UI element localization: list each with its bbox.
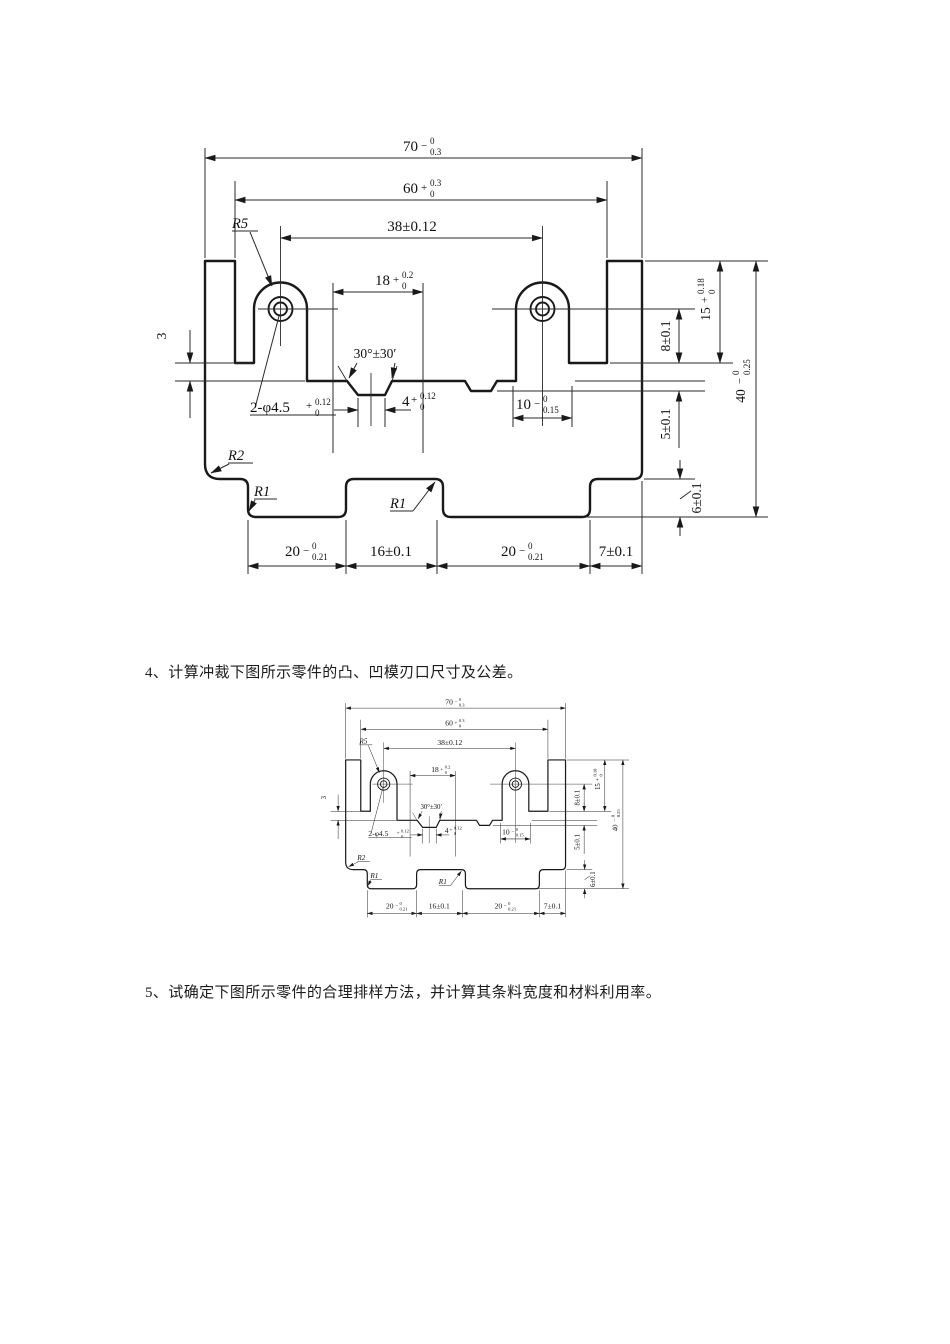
dim-sign: + [421, 182, 427, 194]
dim-sign: + [411, 394, 417, 406]
dim-tol-sub: 0 [707, 289, 717, 294]
leader-line [349, 363, 357, 378]
label-r2: R2 [349, 854, 370, 867]
dim-label: 40 [733, 389, 748, 403]
dim-sign: + [699, 297, 711, 303]
dim-angle-30: 30°±30′ [349, 346, 396, 378]
dim-label: 8±0.1 [575, 790, 582, 806]
leader-line [250, 232, 272, 286]
dim-tol-sub: 0 [401, 834, 404, 839]
dim-tol-sup: 0 [312, 541, 317, 551]
dim-tol-sup: 0.2 [445, 765, 451, 770]
dim-tol-sub: 0.3 [430, 147, 442, 157]
dim-label: 18 [375, 273, 390, 289]
radius-label: R5 [231, 216, 248, 232]
dim-sign: − [303, 545, 309, 557]
dim-tol-sub: 0.25 [616, 809, 621, 818]
dim-tol-sub: 0.15 [543, 405, 559, 415]
dim-tol-sub: 0 [598, 774, 603, 777]
label-r1-middle: R1 [438, 871, 462, 886]
dim-sign: − [395, 903, 398, 909]
dim-holes: 2-φ4.5 + 0.12 0 [368, 788, 411, 839]
label-r5: R5 [231, 216, 272, 286]
radius-label: R1 [438, 878, 447, 886]
flare-line [338, 366, 347, 381]
dim-width-70: 70 − 0 0.3 [205, 136, 642, 258]
dim-height-8: 8±0.1 [549, 784, 611, 811]
leader-line [450, 871, 461, 886]
dim-tol-sup: 0 [543, 394, 548, 404]
leader-line [371, 788, 383, 834]
dim-tol-sub: 0.21 [528, 552, 544, 562]
dim-label: 15 [595, 783, 602, 790]
dim-label: 15 [698, 307, 713, 321]
dim-tol-sub: 0 [454, 831, 457, 836]
leader-line [349, 862, 358, 867]
dim-height-6: 6±0.1 [644, 460, 704, 536]
dim-sign: − [519, 545, 525, 557]
leader-line [211, 464, 229, 473]
dim-label: 38±0.12 [437, 738, 462, 747]
leader-line [255, 316, 279, 408]
dim-label: 70 [445, 698, 453, 707]
dim-sign: − [511, 829, 514, 835]
dim-sign: + [306, 400, 312, 412]
dim-label: 60 [403, 181, 418, 197]
dim-sign: + [393, 274, 399, 286]
radius-label: R2 [227, 448, 244, 464]
dim-label: 10 [502, 827, 510, 836]
dim-label: 4 [402, 394, 410, 410]
dim-label: 10 [516, 397, 531, 413]
dim-label: 20 [386, 901, 394, 910]
dim-height-8: 8±0.1 [610, 309, 733, 363]
part-drawing-svg: 70 − 0 0.3 60 + 0.3 0 38±0.12 18 + 0.2 0… [150, 118, 790, 588]
dim-tol-sup: 0.12 [454, 825, 463, 830]
dim-sign: − [612, 819, 618, 822]
dim-bottom-row: 20 − 0 0.21 16±0.1 20 − 0 0.21 7±0.1 [367, 871, 565, 918]
dim-label: 8±0.1 [658, 320, 673, 351]
dim-sign: + [440, 767, 443, 773]
dim-tol-sup: 0.18 [593, 768, 598, 777]
leader-line [413, 482, 435, 511]
dim-tol-sub: 0 [402, 281, 407, 291]
leader-line [249, 500, 255, 511]
centerlines [372, 742, 592, 843]
dim-label: 16±0.1 [370, 544, 412, 560]
dim-tol-sup: 0.12 [315, 397, 331, 407]
dim-label: 5±0.1 [658, 408, 673, 439]
dim-tol-sub: 0 [430, 189, 435, 199]
label-r1-left: R1 [368, 872, 382, 886]
dim-label: 30°±30′ [354, 346, 397, 361]
dim-tol-sub: 0 [459, 724, 462, 729]
leader-line [368, 880, 371, 886]
question-5-text: 5、试确定下图所示零件的合理排样方法，并计算其条料宽度和材料利用率。 [145, 981, 661, 1002]
dim-width-38: 38±0.12 [384, 738, 516, 749]
label-r1-middle: R1 [389, 482, 435, 512]
dim-sign: − [504, 903, 507, 909]
dim-label: 16±0.1 [429, 901, 450, 910]
dim-tol-sup: 0.18 [696, 278, 706, 294]
dim-sign: − [734, 378, 746, 384]
dim-label: 20 [495, 901, 503, 910]
dim-label: 2-φ4.5 [368, 829, 388, 838]
figure-large-part-drawing: 70 − 0 0.3 60 + 0.3 0 38±0.12 18 + 0.2 0… [150, 118, 790, 588]
dim-tol-sup: 0 [508, 901, 511, 906]
dim-width-4: 4 + 0.12 0 [411, 825, 463, 843]
dim-tol-sup: 0 [516, 827, 519, 832]
dim-label: 6±0.1 [689, 482, 704, 513]
dim-label: 30°±30′ [420, 804, 442, 811]
dim-tol-sup: 0 [430, 136, 435, 146]
dim-tol-sup: 0 [610, 814, 615, 817]
dim-width-38: 38±0.12 [281, 219, 543, 238]
dim-tol-sub: 0 [445, 770, 448, 775]
dim-sign: + [454, 721, 457, 727]
radius-label: R5 [358, 737, 367, 745]
dim-tol-sub: 0.3 [459, 703, 465, 708]
radius-label: R1 [253, 484, 270, 500]
question-4-text: 4、计算冲裁下图所示零件的凸、凹模刃口尺寸及公差。 [145, 661, 523, 682]
dim-width-4: 4 + 0.12 0 [334, 391, 436, 427]
dim-sign: + [449, 827, 452, 833]
dim-sign: − [454, 700, 457, 706]
dim-height-6: 6±0.1 [567, 860, 598, 898]
leader-line [368, 745, 379, 772]
dim-sign: − [534, 398, 540, 410]
dim-tol-sup: 0.12 [401, 828, 410, 833]
dim-label: 5±0.1 [575, 834, 582, 850]
leader-line [418, 811, 422, 819]
dim-width-18: 18 + 0.2 0 [333, 270, 423, 453]
label-r5: R5 [358, 737, 379, 772]
dim-tol-sub: 0 [420, 402, 425, 412]
dim-label: 3 [321, 795, 328, 799]
dim-label: 3 [154, 332, 169, 339]
label-r1-left: R1 [249, 484, 277, 511]
dim-tol-sub: 0.21 [508, 906, 516, 911]
dim-sign: − [421, 140, 427, 152]
dim-sign: + [595, 778, 601, 781]
leader-line [585, 876, 591, 880]
dim-tol-sup: 0.2 [402, 270, 413, 280]
dim-tol-sup: 0 [459, 697, 462, 702]
dim-label: 7±0.1 [599, 544, 633, 560]
centerlines [258, 226, 695, 426]
dim-label: 20 [501, 544, 516, 560]
dim-tol-sub: 0 [315, 408, 320, 418]
dim-bottom-row: 20 − 0 0.21 16±0.1 20 − 0 0.21 7±0.1 [248, 481, 642, 574]
dim-label: 20 [285, 544, 300, 560]
dim-label: 7±0.1 [544, 901, 562, 910]
dim-width-60: 60 + 0.3 0 [235, 178, 607, 258]
dim-tol-sup: 0 [528, 541, 533, 551]
dim-tol-sup: 0.3 [459, 718, 465, 723]
dim-label: 18 [431, 765, 439, 774]
dim-width-70: 70 − 0 0.3 [346, 697, 566, 758]
flare-line [413, 813, 418, 821]
dim-label: 40 [612, 824, 619, 831]
dim-label: 6±0.1 [590, 871, 597, 887]
dim-tol-sub: 0.21 [312, 552, 328, 562]
label-r2: R2 [211, 448, 253, 473]
dim-label: 38±0.12 [387, 219, 436, 235]
dim-tol-sup: 0.12 [420, 391, 436, 401]
dim-tol-sup: 0 [400, 901, 403, 906]
dim-tol-sub: 0.21 [400, 906, 408, 911]
dim-angle-30: 30°±30′ [418, 804, 442, 819]
dim-tol-sub: 0.15 [516, 832, 525, 837]
dim-holes: 2-φ4.5 + 0.12 0 [250, 316, 336, 418]
figure-small-part-drawing: 70 − 0 0.3 60 + 0.3 0 38±0.12 18 + 0.2 0… [318, 688, 640, 924]
dim-label: 60 [445, 719, 453, 728]
document-page: { "page": {"background": "#ffffff", "ink… [0, 0, 950, 1344]
radius-label: R2 [356, 854, 365, 862]
part-drawing-svg: 70 − 0 0.3 60 + 0.3 0 38±0.12 18 + 0.2 0… [318, 688, 640, 924]
dim-sign: + [396, 830, 399, 836]
dim-tol-sup: 0 [731, 370, 741, 375]
dim-label: 70 [403, 139, 418, 155]
dim-label: 2-φ4.5 [250, 400, 290, 416]
dim-label: 4 [445, 826, 449, 835]
radius-label: R1 [369, 872, 378, 880]
dim-tol-sup: 0.3 [430, 178, 442, 188]
radius-label: R1 [389, 496, 406, 512]
dim-tol-sub: 0.25 [742, 359, 752, 375]
